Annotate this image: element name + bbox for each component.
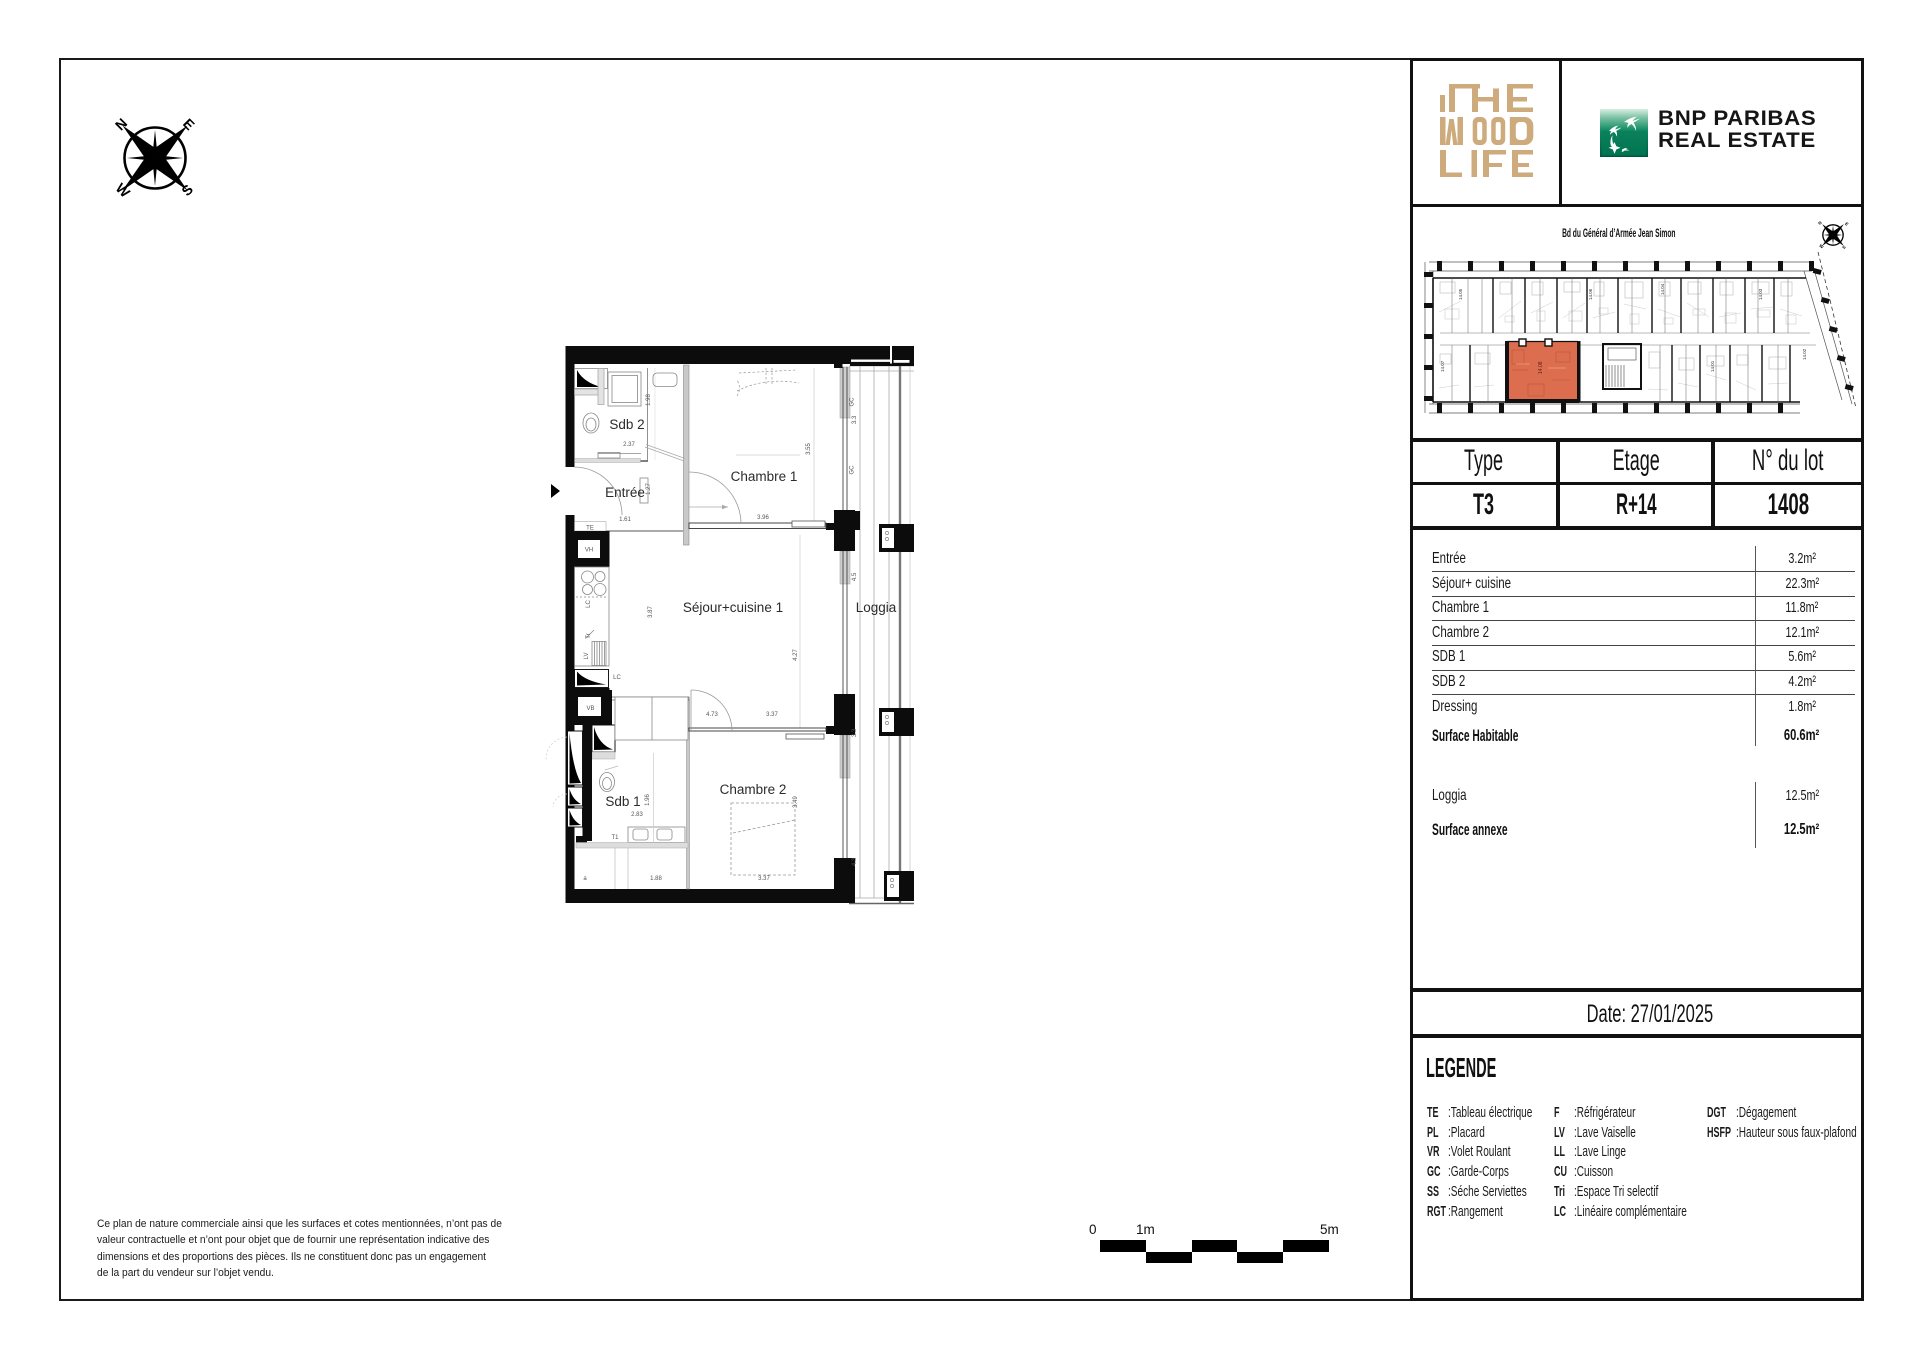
svg-text:14.05: 14.05 — [1458, 288, 1463, 300]
svg-text:T1: T1 — [611, 835, 619, 841]
svg-text:Sdb 2: Sdb 2 — [609, 417, 644, 432]
svg-text:3.96: 3.96 — [757, 515, 769, 521]
svg-text:VH: VH — [585, 548, 593, 554]
svg-text:Tr: Tr — [586, 633, 592, 638]
svg-text:1.98: 1.98 — [646, 394, 652, 406]
svg-text:Entrée: Entrée — [605, 485, 645, 500]
svg-text:3.49: 3.49 — [793, 796, 799, 808]
svg-text:14.02: 14.02 — [1802, 348, 1807, 360]
svg-text:LV: LV — [584, 653, 590, 660]
svg-text:VB: VB — [586, 706, 594, 712]
svg-text:14.01: 14.01 — [1710, 360, 1715, 372]
svg-text:14.07: 14.07 — [1440, 360, 1445, 372]
svg-text:N: N — [1817, 220, 1823, 226]
svg-text:E: E — [1844, 221, 1849, 227]
svg-text:3.37: 3.37 — [758, 876, 770, 882]
svg-text:LC: LC — [586, 599, 592, 607]
svg-text:3.37: 3.37 — [766, 712, 778, 718]
svg-text:4.3: 4.3 — [852, 857, 858, 866]
svg-text:S: S — [1841, 244, 1847, 250]
svg-text:S: S — [178, 181, 196, 199]
svg-text:1.61: 1.61 — [619, 517, 631, 523]
svg-text:3.3: 3.3 — [852, 415, 858, 424]
svg-text:3.87: 3.87 — [648, 606, 654, 618]
svg-text:Séjour+cuisine 1: Séjour+cuisine 1 — [683, 600, 783, 615]
svg-text:GC: GC — [850, 397, 856, 407]
svg-text:a: a — [583, 876, 587, 882]
svg-text:14.03: 14.03 — [1758, 288, 1763, 300]
svg-text:3.55: 3.55 — [806, 443, 812, 455]
svg-text:LC: LC — [613, 675, 621, 681]
svg-text:2.37: 2.37 — [623, 442, 635, 448]
svg-text:14.08: 14.08 — [1538, 361, 1544, 374]
svg-text:Chambre 2: Chambre 2 — [720, 782, 787, 797]
svg-text:Loggia: Loggia — [856, 600, 897, 615]
svg-text:1.96: 1.96 — [645, 794, 651, 806]
svg-text:1.88: 1.88 — [650, 876, 662, 882]
svg-text:GC: GC — [850, 465, 856, 475]
svg-text:4.5: 4.5 — [852, 572, 858, 581]
svg-text:4.73: 4.73 — [706, 712, 718, 718]
svg-text:2.83: 2.83 — [631, 812, 643, 818]
svg-text:TE: TE — [586, 526, 594, 532]
svg-text:4.27: 4.27 — [793, 649, 799, 661]
svg-text:Sdb 1: Sdb 1 — [605, 794, 640, 809]
svg-text:14.06: 14.06 — [1588, 288, 1593, 300]
svg-text:1.27: 1.27 — [646, 483, 652, 495]
svg-text:14.04: 14.04 — [1660, 283, 1665, 295]
svg-text:3.3: 3.3 — [852, 728, 858, 737]
svg-text:Chambre 1: Chambre 1 — [731, 469, 798, 484]
